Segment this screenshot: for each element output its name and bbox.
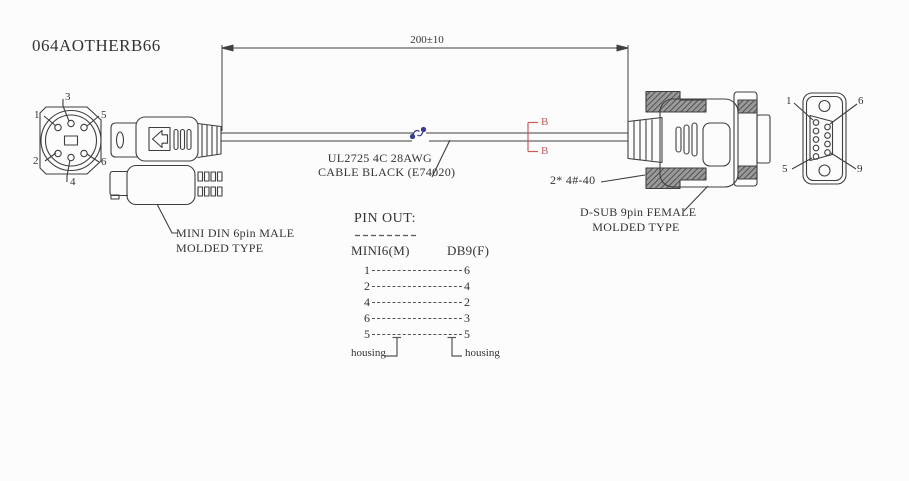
minidin-pin-label-1: 1 [34, 109, 40, 122]
section-marker-bottom: B [541, 145, 548, 158]
pinout-housing-left: housing [351, 347, 386, 360]
minidin-top-view [110, 166, 222, 234]
pinout-row-left: 4 [356, 295, 370, 310]
diagram-lineart [0, 0, 909, 481]
pinout-title: PIN OUT: [354, 211, 416, 227]
minidin-caption: MINI DIN 6pin MALE MOLDED TYPE [176, 226, 294, 256]
minidin-pin-label-2: 2 [33, 155, 39, 168]
dsub-pin-label-1: 1 [786, 95, 792, 108]
pinout-row-left: 2 [356, 279, 370, 294]
pinout-col-db9: DB9(F) [447, 244, 489, 259]
pinout-wire-line [372, 302, 462, 303]
pinout-row-left: 6 [356, 311, 370, 326]
pinout-wire-line [372, 318, 462, 319]
pinout-wire-line [372, 270, 462, 271]
cable-spec-label: UL2725 4C 28AWG CABLE BLACK (E74020) [318, 151, 432, 179]
dsub-side-view [601, 92, 770, 212]
dsub-caption-line2: MOLDED TYPE [580, 220, 692, 235]
pinout-housing-right: housing [465, 347, 500, 360]
dsub-pin-label-6: 6 [858, 95, 864, 108]
minidin-side-view [111, 117, 221, 161]
pinout-row: 4 2 [356, 295, 478, 309]
pinout-row: 6 3 [356, 311, 478, 325]
section-mark [528, 123, 538, 152]
pinout-col-mini6: MINI6(M) [351, 244, 410, 259]
minidin-pin-label-3: 3 [65, 91, 71, 104]
cable-length-dimension: 200±10 [397, 34, 457, 47]
dsub-pin-label-9: 9 [857, 163, 863, 176]
dsub-front-view [792, 93, 857, 184]
drawing-title: 064AOTHERB66 [32, 36, 161, 56]
pinout-row-right: 5 [464, 327, 478, 342]
minidin-pin-label-5: 5 [101, 109, 107, 122]
minidin-front-view [40, 99, 101, 182]
dimension-line [222, 45, 628, 131]
minidin-pin-label-6: 6 [101, 156, 107, 169]
minidin-caption-line2: MOLDED TYPE [176, 241, 294, 256]
section-marker-top: B [541, 116, 548, 129]
pinout-row-right: 4 [464, 279, 478, 294]
pinout-row-right: 3 [464, 311, 478, 326]
minidin-caption-line1: MINI DIN 6pin MALE [176, 226, 294, 241]
cable-spec-line2: CABLE BLACK (E74020) [318, 165, 432, 179]
pinout-row-right: 2 [464, 295, 478, 310]
cable-spec-line1: UL2725 4C 28AWG [318, 151, 432, 165]
jackscrew-label: 2* 4#-40 [550, 174, 595, 188]
dsub-caption: D-SUB 9pin FEMALE MOLDED TYPE [580, 205, 692, 235]
wiring-diagram-page: 064AOTHERB66 200±10 1 3 5 2 6 4 UL2725 4… [0, 0, 909, 481]
dsub-caption-line1: D-SUB 9pin FEMALE [580, 205, 692, 220]
dsub-pin-label-5: 5 [782, 163, 788, 176]
pinout-row: 5 5 [356, 327, 478, 341]
pinout-wire-line [372, 286, 462, 287]
pinout-row-left: 1 [356, 263, 370, 278]
pinout-row-left: 5 [356, 327, 370, 342]
pinout-wire-line [372, 334, 462, 335]
pinout-row-right: 6 [464, 263, 478, 278]
pinout-row: 1 6 [356, 263, 478, 277]
minidin-pin-label-4: 4 [70, 176, 76, 189]
pinout-row: 2 4 [356, 279, 478, 293]
